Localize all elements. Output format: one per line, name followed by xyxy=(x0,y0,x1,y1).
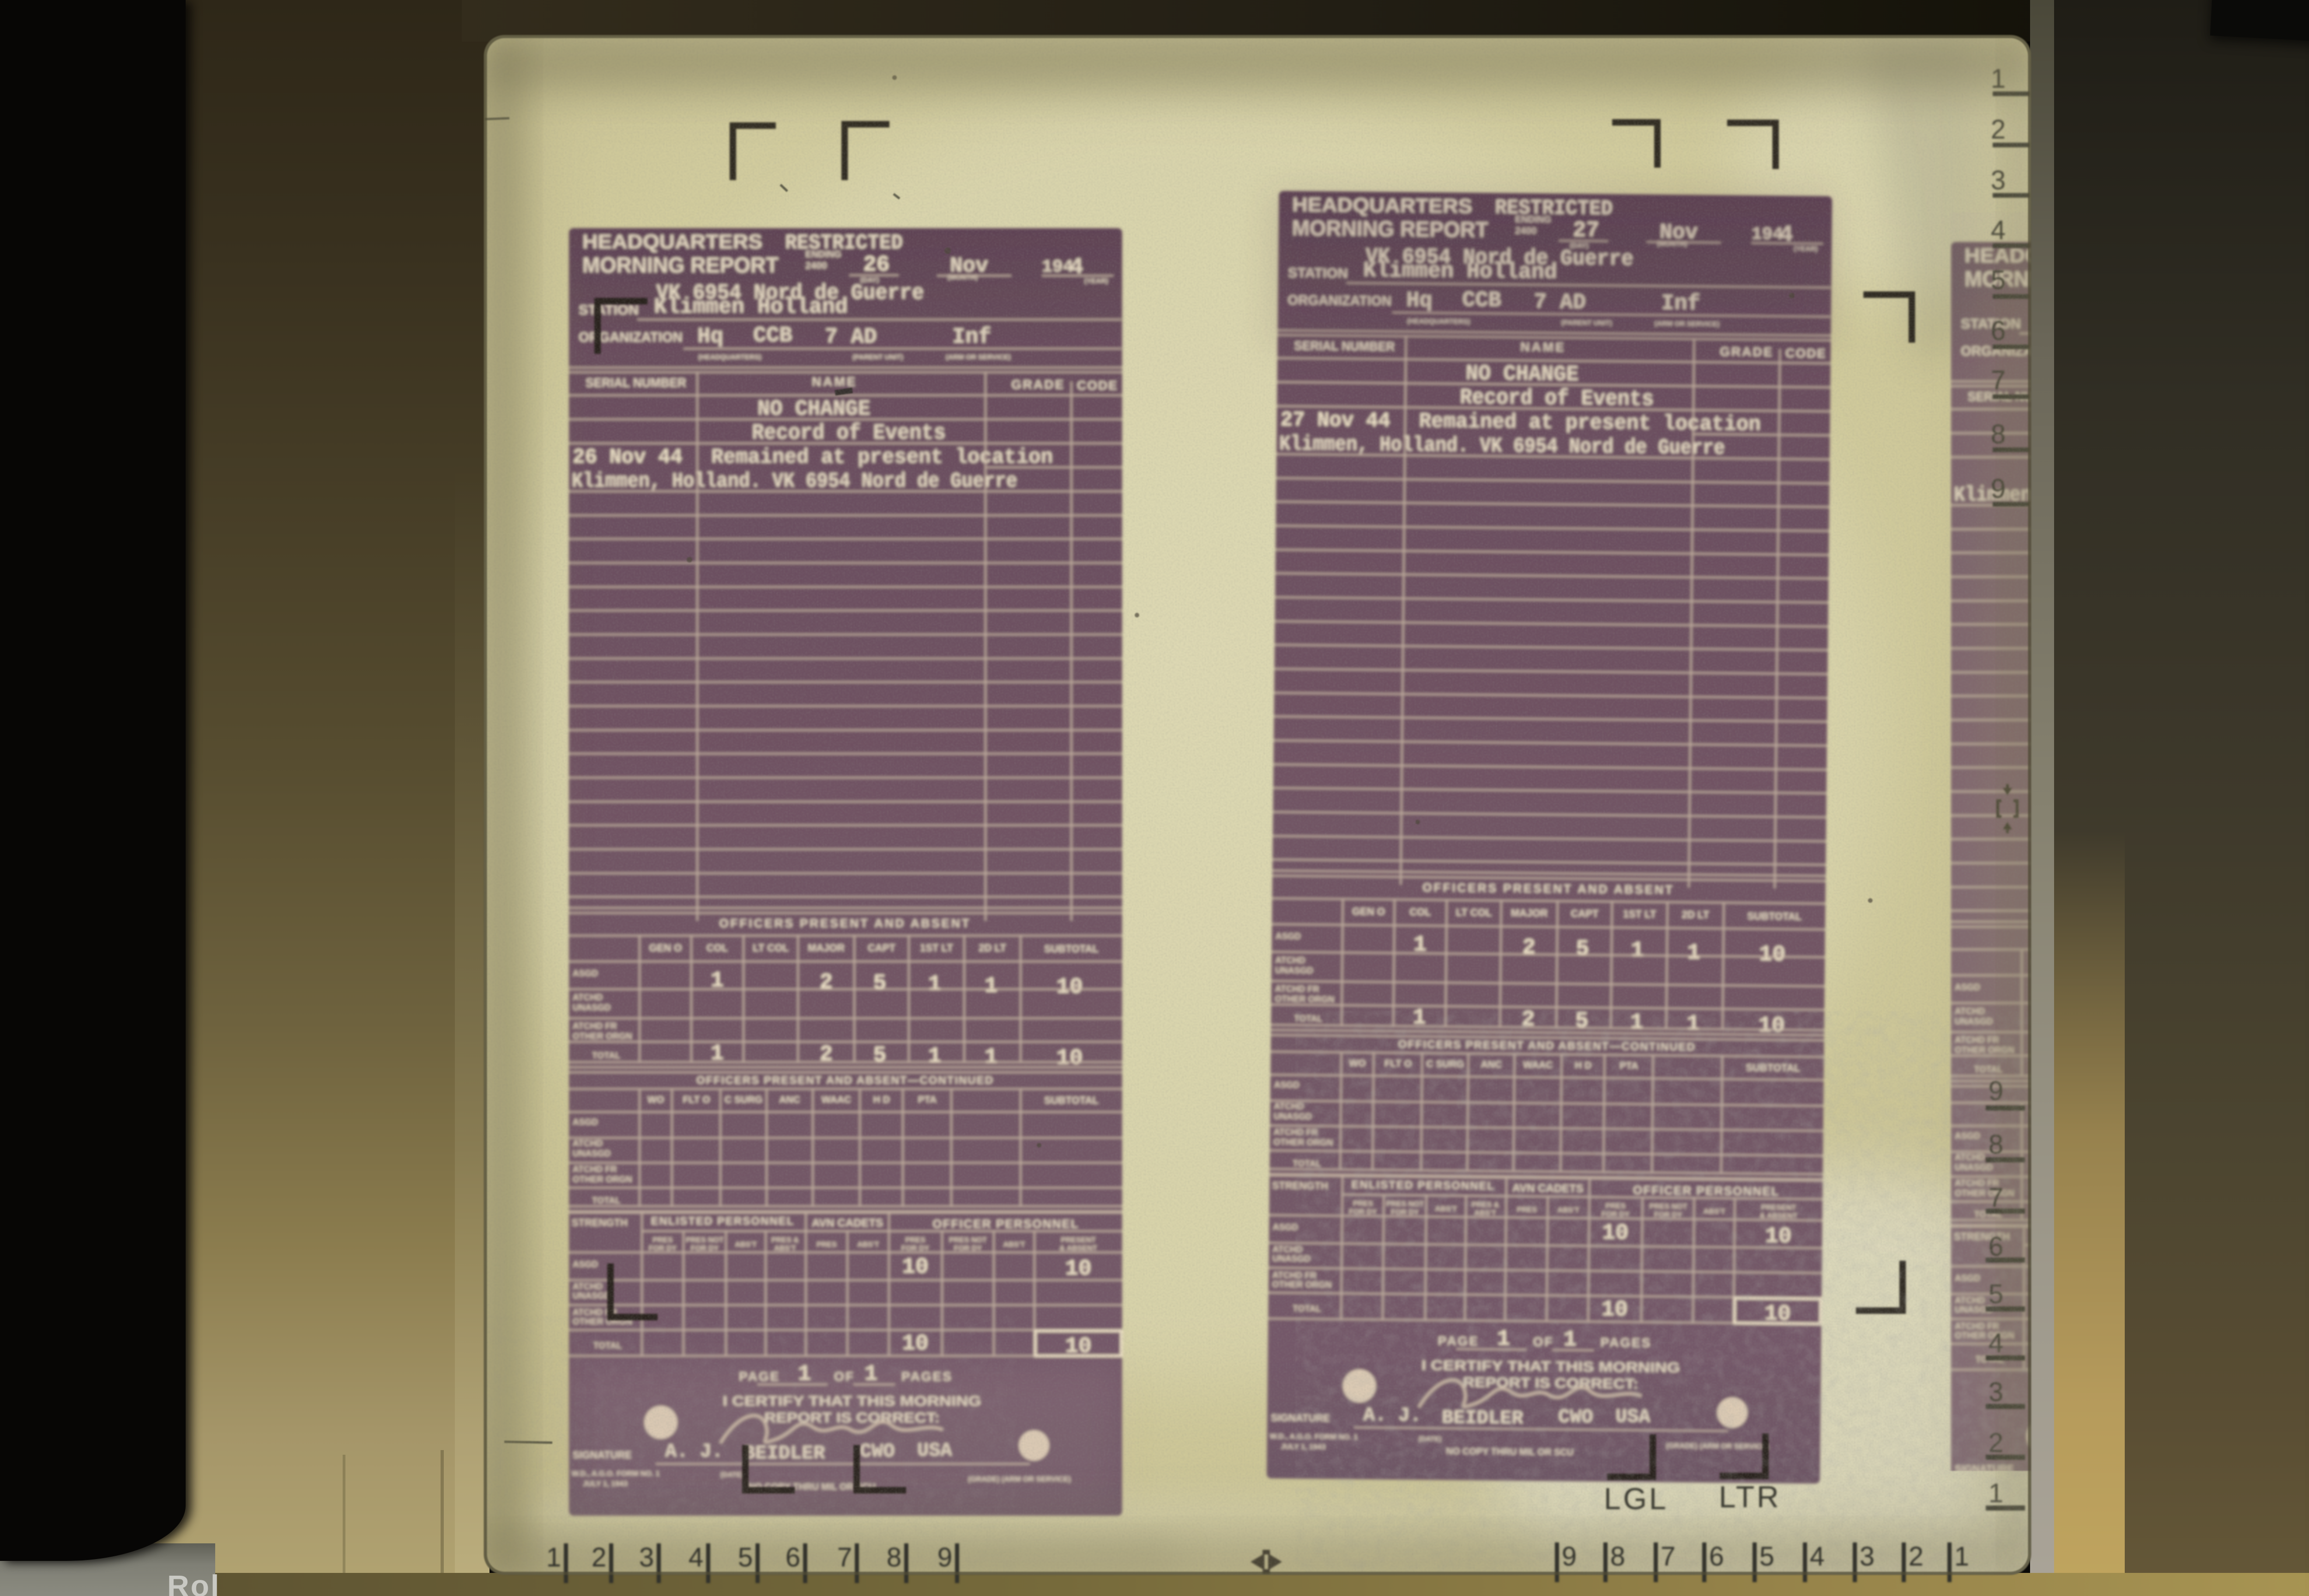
svg-text:1: 1 xyxy=(1954,1542,1969,1572)
svg-text:8: 8 xyxy=(1610,1542,1625,1572)
svg-text:1: 1 xyxy=(546,1542,561,1572)
svg-text:8: 8 xyxy=(887,1542,901,1572)
svg-text:3: 3 xyxy=(1860,1542,1874,1572)
svg-text:4: 4 xyxy=(1810,1542,1825,1572)
svg-text:7: 7 xyxy=(1661,1542,1675,1572)
svg-text:7: 7 xyxy=(837,1542,852,1572)
svg-text:6: 6 xyxy=(786,1542,800,1572)
svg-text:9: 9 xyxy=(937,1542,952,1572)
svg-text:6: 6 xyxy=(1709,1542,1724,1572)
svg-text:2: 2 xyxy=(1909,1542,1923,1572)
svg-text:2: 2 xyxy=(592,1542,606,1572)
svg-text:3: 3 xyxy=(639,1542,654,1572)
svg-text:4: 4 xyxy=(689,1542,703,1572)
svg-text:5: 5 xyxy=(1759,1542,1774,1572)
svg-text:9: 9 xyxy=(1562,1542,1577,1572)
svg-text:5: 5 xyxy=(738,1542,753,1572)
svg-text:LGL: LGL xyxy=(1604,1481,1668,1516)
svg-text:LTR: LTR xyxy=(1719,1480,1781,1514)
